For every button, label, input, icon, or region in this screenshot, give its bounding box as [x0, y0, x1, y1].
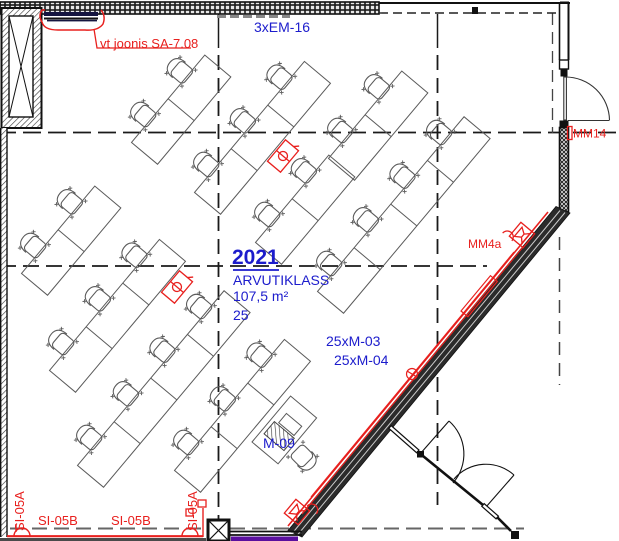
svg-text:M-09: M-09: [263, 435, 295, 451]
svg-text:MM14: MM14: [573, 127, 607, 141]
svg-text:vt joonis SA-7.08: vt joonis SA-7.08: [100, 36, 198, 51]
svg-text:25xM-03: 25xM-03: [326, 333, 381, 349]
svg-text:SI-05A: SI-05A: [185, 491, 200, 531]
svg-text:SI-05A: SI-05A: [12, 491, 27, 531]
svg-text:25xM-04: 25xM-04: [334, 352, 389, 368]
svg-text:2021: 2021: [232, 246, 279, 269]
svg-text:SI-05B: SI-05B: [38, 513, 78, 528]
svg-text:ARVUTIKLASS: ARVUTIKLASS: [233, 272, 329, 288]
svg-text:25: 25: [233, 307, 249, 323]
svg-text:3xEM-16: 3xEM-16: [254, 19, 310, 35]
svg-text:107,5 m²: 107,5 m²: [233, 288, 289, 304]
svg-text:SI-05B: SI-05B: [111, 513, 151, 528]
svg-text:MM4a: MM4a: [468, 237, 502, 251]
